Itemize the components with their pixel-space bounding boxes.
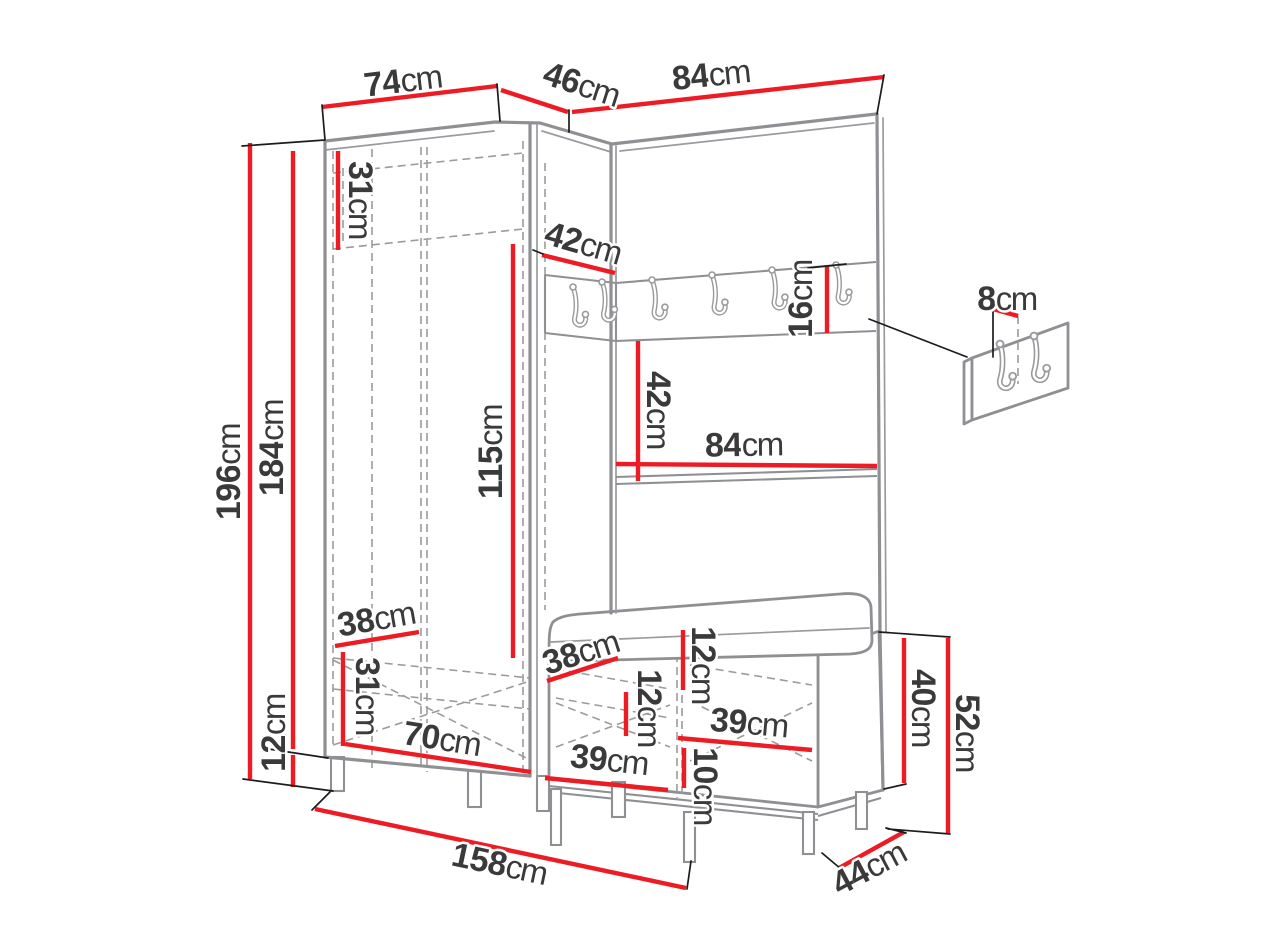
- coat-hook-icon: [649, 276, 669, 319]
- dim-label-wardrobe-inner-width: 70cm: [400, 714, 483, 764]
- hook-plate-panel: [972, 323, 1068, 420]
- dim-label-bench-shelf-spacing: 12cm: [630, 669, 668, 747]
- dim-label-hanging-space-height: 115cm: [472, 405, 510, 499]
- dim-label-top-shelf-height: 31cm: [341, 161, 379, 239]
- dim-label-total-width: 158cm: [448, 836, 550, 893]
- dim-label-bottom-compartment-height: 31cm: [348, 657, 386, 735]
- top-inner-edge: [325, 123, 874, 152]
- coat-hook-icon: [570, 283, 589, 325]
- dim-label-hook-plate-width: 8cm: [977, 280, 1036, 318]
- dim-label-bench-total-height: 52cm: [948, 694, 986, 772]
- furniture-leg: [468, 771, 481, 807]
- wall-shelf: [616, 469, 877, 484]
- furniture-dimension-diagram: 74cm 46cm 84cm 31cm 42cm 16cm 42cm 84cm …: [0, 0, 1267, 950]
- coat-hook-icon: [709, 271, 729, 314]
- wall-panel-right-edge: [877, 114, 880, 632]
- dim-label-wardrobe-inner-depth: 38cm: [334, 594, 417, 645]
- dim-label-left-leg-height: 12cm: [255, 694, 293, 772]
- bench-side-panel: [818, 631, 883, 807]
- furniture-leg: [537, 776, 549, 811]
- dim-label-total-height: 196cm: [210, 424, 248, 520]
- wall-panel-right-edge-inner: [883, 118, 886, 632]
- dim-label-bench-body-height: 40cm: [904, 669, 942, 747]
- dim-label-bench-bottom-clearance: 10cm: [686, 747, 724, 825]
- coat-hook-icon: [833, 261, 853, 304]
- bench-leg: [551, 789, 561, 845]
- bench-leg: [856, 792, 867, 829]
- wall-hook-plate-detail: [869, 310, 1068, 424]
- diagram-canvas: 74cm 46cm 84cm 31cm 42cm 16cm 42cm 84cm …: [0, 0, 1267, 950]
- furniture-leg: [331, 757, 344, 791]
- dim-label-niche-height: 42cm: [639, 371, 677, 449]
- top-edge: [325, 114, 876, 144]
- dim-label-hook-rail-height: 16cm: [782, 260, 820, 338]
- dim-label-body-height: 184cm: [253, 400, 291, 496]
- dim-line-niche-width: [616, 464, 877, 466]
- dim-label-seat-cushion-height: 12cm: [684, 626, 722, 704]
- dim-label-bench-inner-width-lower: 39cm: [568, 737, 649, 783]
- dim-label-niche-width: 84cm: [705, 425, 783, 464]
- dim-label-bench-depth: 44cm: [826, 833, 913, 903]
- dim-label-bench-inner-width-upper: 39cm: [709, 701, 790, 746]
- bench-leg: [803, 812, 814, 854]
- dim-label-left-section-width: 74cm: [362, 57, 444, 104]
